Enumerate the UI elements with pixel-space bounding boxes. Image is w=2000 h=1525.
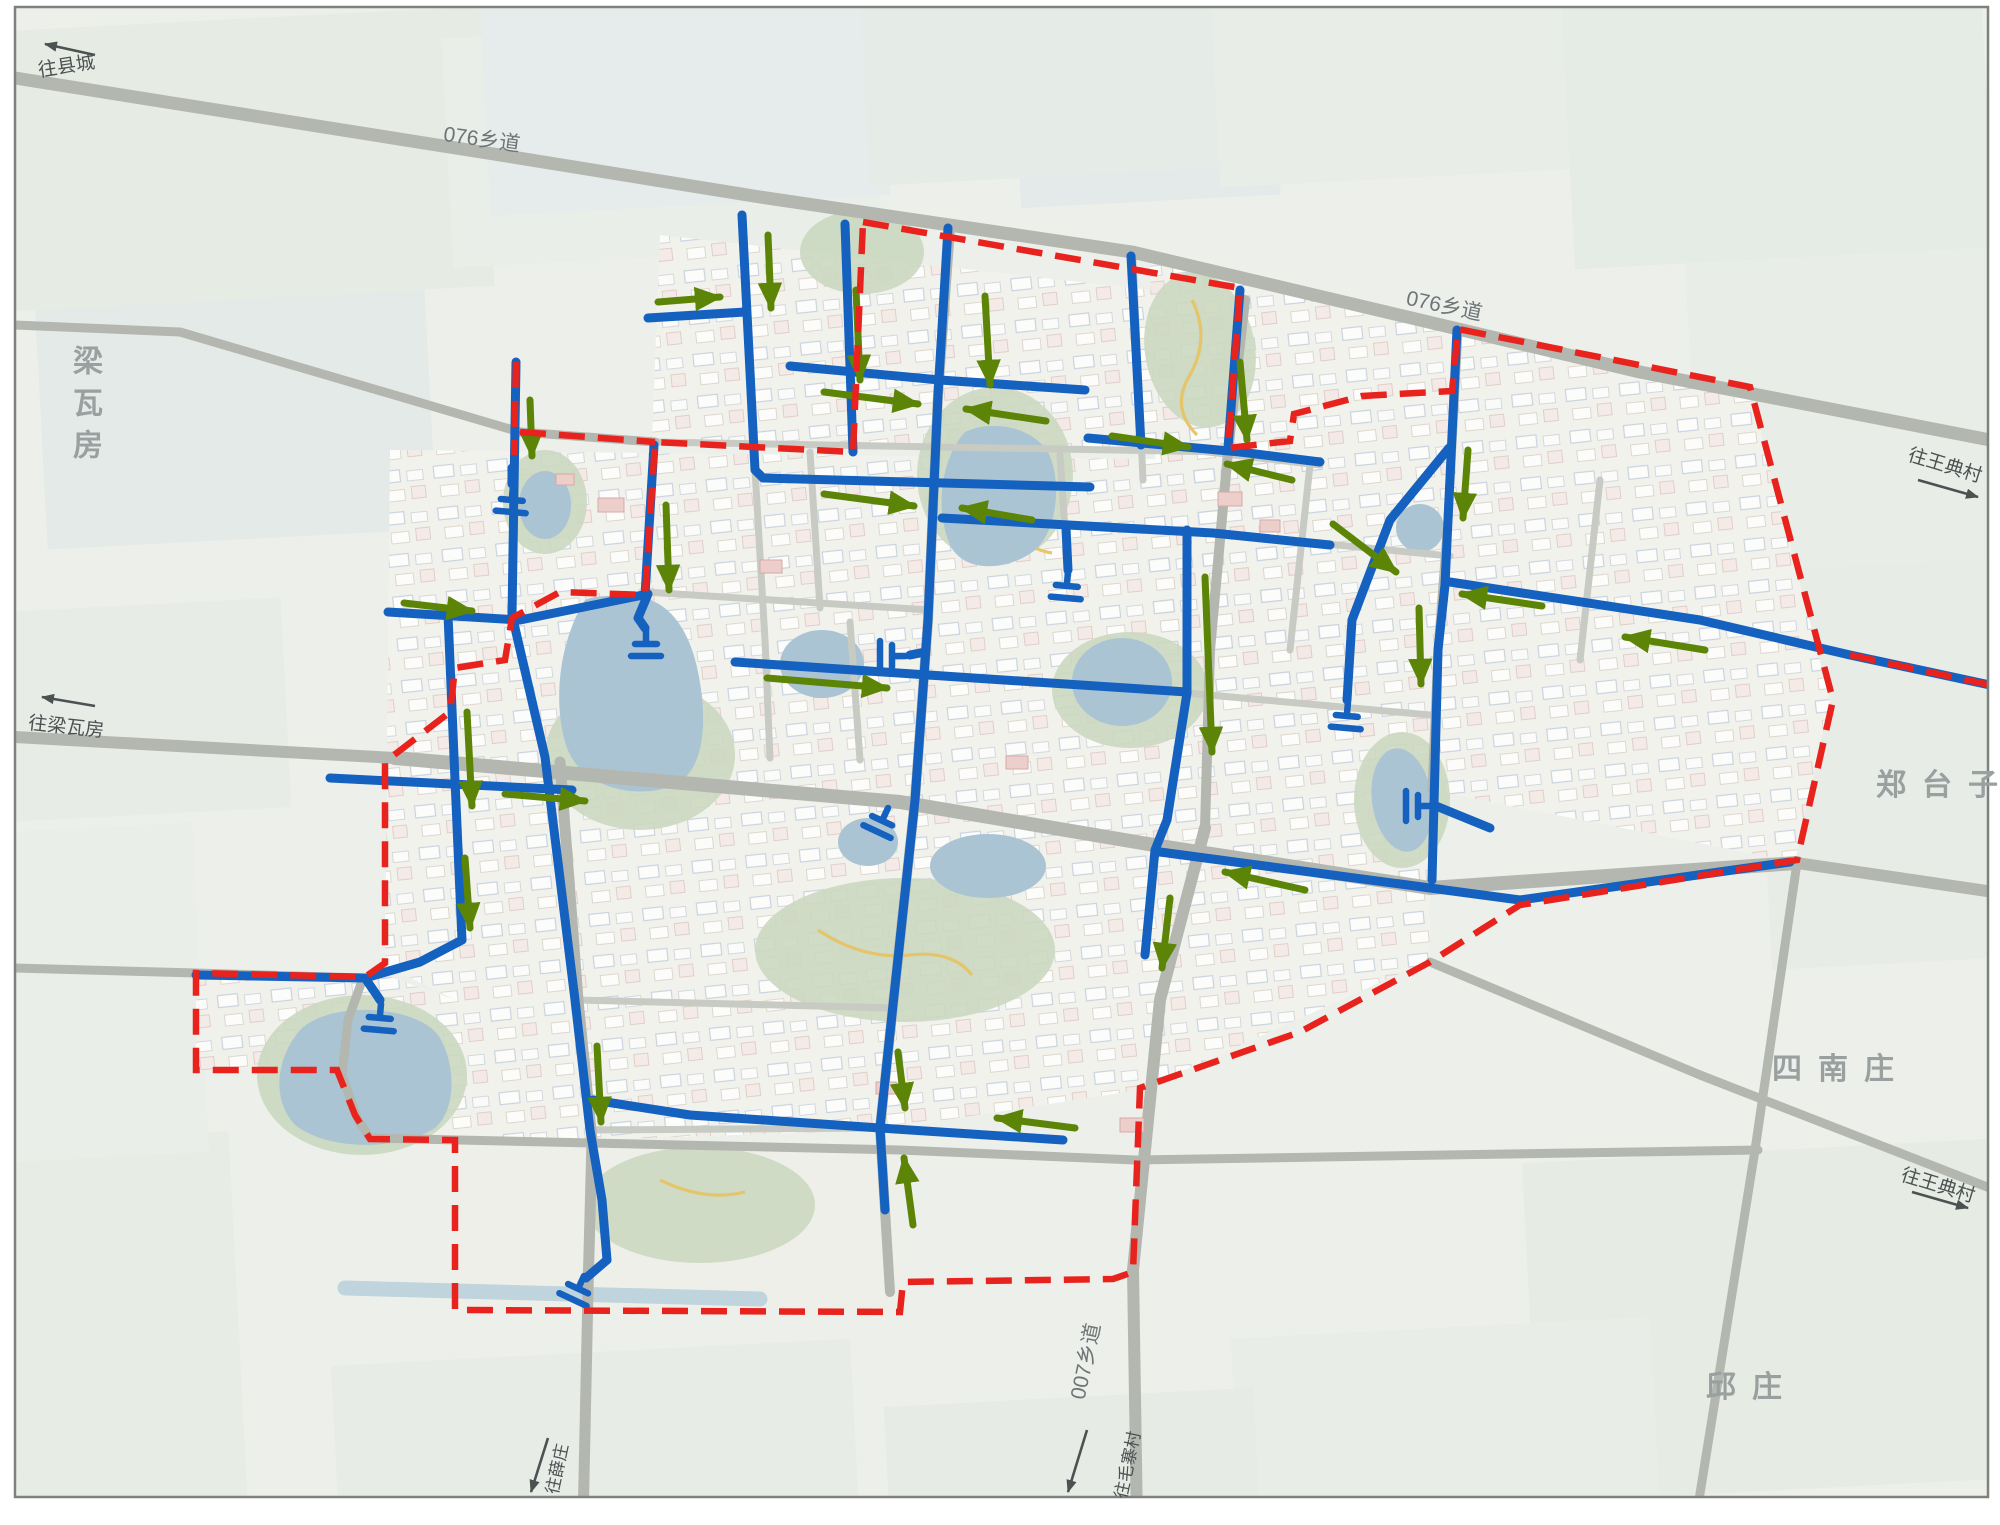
base-map-svg bbox=[0, 0, 2000, 1525]
flow-arrow bbox=[465, 858, 470, 928]
flow-arrow bbox=[666, 505, 669, 590]
flow-arrow bbox=[768, 235, 771, 308]
pond-ne bbox=[1396, 504, 1444, 552]
map-canvas: 往县城 076乡道 梁瓦房 往梁瓦房 076乡道 往王典村 郑台子 四南庄 往王… bbox=[0, 0, 2000, 1525]
flow-arrow bbox=[1419, 608, 1421, 684]
flow-arrow bbox=[985, 296, 990, 385]
flow-arrow bbox=[597, 1046, 601, 1122]
flow-arrow bbox=[467, 712, 472, 806]
flow-arrow bbox=[530, 400, 532, 456]
pond-south-2 bbox=[930, 834, 1046, 898]
flow-arrow bbox=[1463, 450, 1468, 518]
flow-arrow bbox=[658, 297, 720, 302]
